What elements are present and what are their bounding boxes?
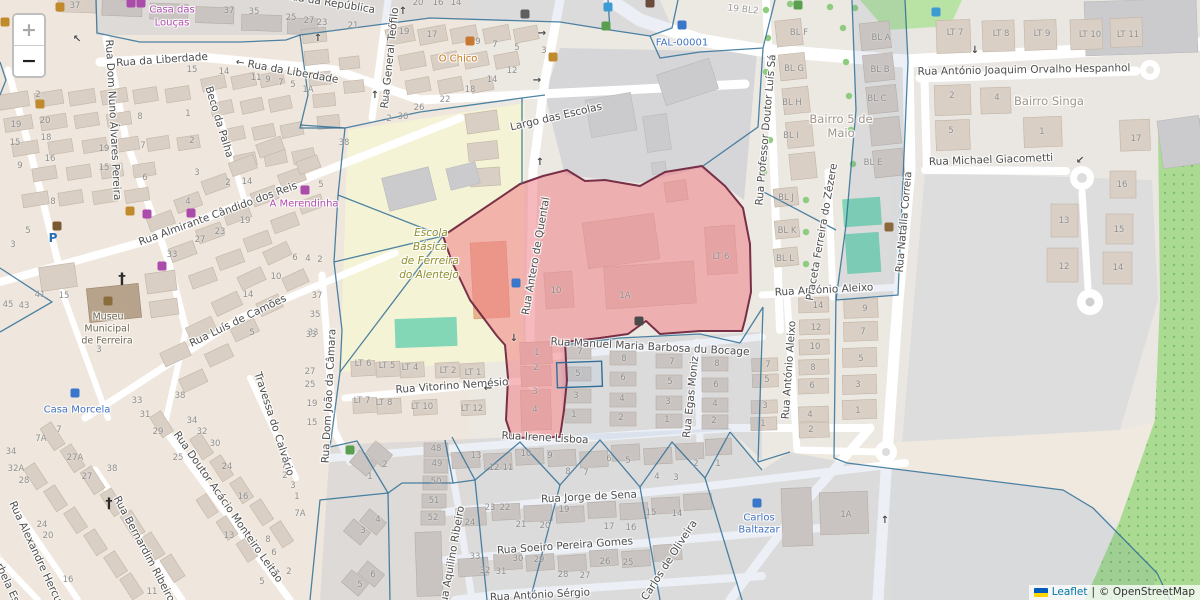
zoom-control: + − (12, 13, 46, 78)
church-building (86, 283, 141, 322)
zoom-out-button[interactable]: − (14, 46, 44, 76)
parcel-area (902, 172, 1158, 442)
leaflet-link[interactable]: Leaflet (1052, 586, 1088, 598)
attribution-bar: Leaflet | © OpenStreetMap (1029, 585, 1200, 600)
ukraine-flag-icon (1034, 588, 1048, 597)
attribution-separator: | (1092, 586, 1096, 598)
map-canvas[interactable]: Rua da Liberdade← Rua da LiberdadeRua Do… (0, 0, 1200, 600)
map-tiles (0, 0, 1200, 600)
zoom-in-button[interactable]: + (14, 15, 44, 46)
osm-copyright[interactable]: © OpenStreetMap (1099, 586, 1195, 598)
parcel-highlight-box[interactable] (557, 361, 603, 388)
